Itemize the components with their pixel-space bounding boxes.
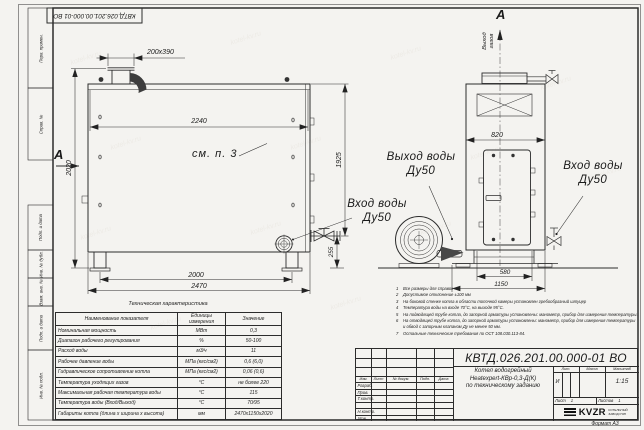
- dim-side-top-width: 820: [479, 132, 515, 139]
- frame-strip-label: Взам. инв. №: [28, 278, 53, 306]
- water-inlet-callout-front: Вход воды Ду50: [342, 197, 412, 225]
- kvzr-logo-subtext: КОТЕЛЬНЫЙ ЗАВОД РЭП: [608, 409, 627, 416]
- kvzr-logo-icon: [564, 408, 576, 417]
- tech-table-title: Техническая характеристика: [55, 301, 281, 307]
- section-mark-side: А: [496, 7, 505, 22]
- tech-cell: Гидравлическое сопротивление котла: [56, 367, 178, 377]
- gas-outlet-line2: газов: [489, 32, 496, 49]
- tech-cell: °С: [178, 398, 226, 408]
- note-number: 7: [396, 331, 403, 337]
- frame-strip-label: Инв. № дубл.: [28, 250, 53, 278]
- tech-cell: МПа (кгс/см2): [178, 367, 226, 377]
- tech-cell: 2470х1150х2020: [226, 409, 282, 419]
- tech-header-units: Единицы измерения: [178, 313, 226, 326]
- product-name-line2: Heatexpert-КВр-0,3-Д(К): [453, 376, 553, 384]
- tb-header-ndokum: № докум.: [386, 377, 416, 381]
- note-line: 7Остальные технические требования по ОСТ…: [396, 331, 638, 337]
- kvzr-logo: KVZR КОТЕЛЬНЫЙ ЗАВОД РЭП: [555, 405, 637, 420]
- note-number: 6: [396, 318, 403, 331]
- tb-row-tkontr: Т.контр.: [358, 396, 375, 401]
- tech-table-row: Габариты котла (длина х ширина х высота)…: [56, 409, 282, 419]
- tech-cell: Максимальная рабочая температура воды: [56, 388, 178, 398]
- tech-cell: %: [178, 336, 226, 346]
- frame-strip-label: Подп. и дата: [28, 205, 53, 250]
- tech-table-row: Максимальная рабочая температура воды°С1…: [56, 388, 282, 398]
- tb-header-izm: Изм.: [356, 377, 371, 381]
- tech-cell: Диапазон рабочего регулирования: [56, 336, 178, 346]
- tb-sheet-cell: Лист 1: [555, 398, 594, 403]
- tb-sheet-label: Лист: [555, 398, 566, 403]
- titleblock-line: [434, 349, 435, 421]
- frame-strip-label: Перв. примен.: [28, 8, 53, 88]
- tech-cell: °С: [178, 377, 226, 387]
- titleblock-line: [386, 349, 387, 421]
- titleblock-line: [356, 367, 453, 368]
- titleblock-line: [596, 397, 597, 404]
- tech-cell: м3/ч: [178, 346, 226, 356]
- tech-cell: Рабочее давление воды: [56, 357, 178, 367]
- tb-sheets-cell: Листов 1: [598, 398, 638, 403]
- note-line: 6На отводящей трубе котла, до запорной а…: [396, 318, 638, 331]
- tech-table-header-row: Наименование показателя Единицы измерени…: [56, 313, 282, 326]
- tech-header-name: Наименование показателя: [56, 313, 178, 326]
- note-text: Остальные технические требования по ОСТ …: [403, 331, 638, 337]
- product-name-line3: по техническому заданию: [453, 383, 553, 391]
- tb-sheets-label: Листов: [598, 398, 613, 403]
- tb-lit-header: Лит.: [553, 367, 579, 371]
- water-outlet-callout: Выход воды Ду50: [384, 150, 458, 178]
- tech-cell: Температура уходящих газов: [56, 377, 178, 387]
- tech-table-row: Гидравлическое сопротивление котлаМПа (к…: [56, 367, 282, 377]
- tb-row-razrab: Разраб.: [358, 383, 373, 388]
- technical-notes: 1Все размеры для справок 2Допустимое отк…: [396, 286, 638, 337]
- tb-header-list: Лист: [371, 377, 386, 381]
- dim-outlet-height: 255: [326, 234, 336, 270]
- tb-row-nkontr: Н.контр.: [358, 409, 376, 414]
- water-inlet-label: Вход воды: [558, 159, 628, 173]
- side-view-linework: [378, 30, 618, 269]
- tech-header-value: Значение: [226, 313, 282, 326]
- product-name-line1: Котел водогрейный: [453, 368, 553, 376]
- drawing-sheet: kotel-kv.ru kotel-kv.ru kotel-kv.ru kote…: [0, 0, 644, 430]
- tech-cell: 50-100: [226, 336, 282, 346]
- kvzr-logo-text: KVZR: [579, 407, 606, 418]
- water-outlet-label: Выход воды: [384, 150, 458, 164]
- tech-cell: мм: [178, 409, 226, 419]
- tb-sheet-value: 1: [571, 398, 573, 403]
- water-inlet-dn: Ду50: [558, 173, 628, 187]
- water-outlet-dn: Ду50: [384, 164, 458, 178]
- tech-table-row: Диапазон рабочего регулирования%50-100: [56, 336, 282, 346]
- format-note: Формат А3: [575, 421, 635, 427]
- tech-table-row: Температура уходящих газов°Сне более 220: [56, 377, 282, 387]
- frame-strip-label: Подп. и дата: [28, 306, 53, 350]
- tech-table-row: Расход водым3/ч11: [56, 346, 282, 356]
- tech-cell: Расход воды: [56, 346, 178, 356]
- dim-top-width: 2240: [181, 118, 217, 125]
- dim-nozzle: 200х390: [147, 49, 174, 56]
- product-name: Котел водогрейный Heatexpert-КВр-0,3-Д(К…: [453, 368, 553, 391]
- gas-outlet-line1: Выход: [482, 32, 489, 49]
- tech-table: Наименование показателя Единицы измерени…: [55, 312, 282, 420]
- section-mark-front: А: [54, 147, 63, 162]
- water-inlet-callout-side: Вход воды Ду50: [558, 159, 628, 187]
- kvzr-logo-sub2: ЗАВОД РЭП: [608, 413, 627, 417]
- tech-cell: Температура воды (Вход/Выход): [56, 398, 178, 408]
- tech-table-row: Температура воды (Вход/Выход)°С70/95: [56, 398, 282, 408]
- tech-cell: 115: [226, 388, 282, 398]
- dim-overall-width: 2470: [181, 283, 217, 290]
- tech-cell: °С: [178, 388, 226, 398]
- tb-header-data: Дата: [434, 377, 453, 381]
- dim-height-left: 2020: [64, 150, 74, 186]
- tb-row-prov: Пров.: [358, 390, 369, 395]
- dim-side-feet-span: 580: [487, 269, 523, 276]
- tech-table-row: Рабочее давление водыМПа (кгс/см2)0,6 (6…: [56, 357, 282, 367]
- titleblock-line: [570, 372, 571, 397]
- tb-mass-header: Масса: [579, 367, 605, 371]
- tech-cell: 70/95: [226, 398, 282, 408]
- tb-lit-value: И: [553, 379, 562, 385]
- front-view-linework: [82, 68, 352, 271]
- dim-height-right: 1925: [334, 142, 344, 178]
- tb-header-podp: Подп.: [416, 377, 434, 381]
- tech-cell: 0,3: [226, 326, 282, 336]
- note-text: На отводящей трубе котла, до запорной ар…: [403, 318, 638, 331]
- tech-cell: МПа (кгс/см2): [178, 357, 226, 367]
- tech-cell: Габариты котла (длина х ширина х высота): [56, 409, 178, 419]
- frame-strip-label: Инв. № подл.: [28, 350, 53, 420]
- titleblock-line: [416, 349, 417, 421]
- tech-cell: Номинальная мощность: [56, 326, 178, 336]
- tech-cell: 11: [226, 346, 282, 356]
- tb-row-utv: Утв.: [358, 416, 368, 421]
- titleblock-line: [356, 389, 453, 390]
- water-inlet-label: Вход воды: [342, 197, 412, 211]
- frame-strip-label: Справ. №: [28, 88, 53, 160]
- titleblock-line: [356, 402, 453, 403]
- tech-cell: 0,06 (0,6): [226, 367, 282, 377]
- titleblock-line: [356, 358, 453, 359]
- tb-sheets-value: 1: [618, 398, 620, 403]
- tb-scale-value: 1:15: [605, 378, 639, 385]
- titleblock-line: [356, 415, 453, 416]
- tech-cell: 0,6 (6,0): [226, 357, 282, 367]
- top-stamp-doc-number: КВТД.026.201.00.000-01 ВО: [47, 8, 142, 23]
- tech-table-row: Номинальная мощностьМВт0,3: [56, 326, 282, 336]
- tb-scale-header: Масштаб: [605, 367, 639, 371]
- title-block: КВТД.026.201.00.000-01 ВО Изм. Лист № до…: [355, 348, 638, 420]
- see-note-callout: см. п. 3: [192, 148, 237, 160]
- titleblock-line: [553, 372, 639, 373]
- tech-cell: МВт: [178, 326, 226, 336]
- titleblock-doc-number: КВТД.026.201.00.000-01 ВО: [453, 349, 639, 366]
- gas-outlet-label: Выход газов: [481, 25, 497, 57]
- dim-feet-span: 2000: [178, 272, 214, 279]
- water-inlet-dn: Ду50: [342, 211, 412, 225]
- tech-cell: не более 220: [226, 377, 282, 387]
- titleblock-line: [553, 366, 554, 421]
